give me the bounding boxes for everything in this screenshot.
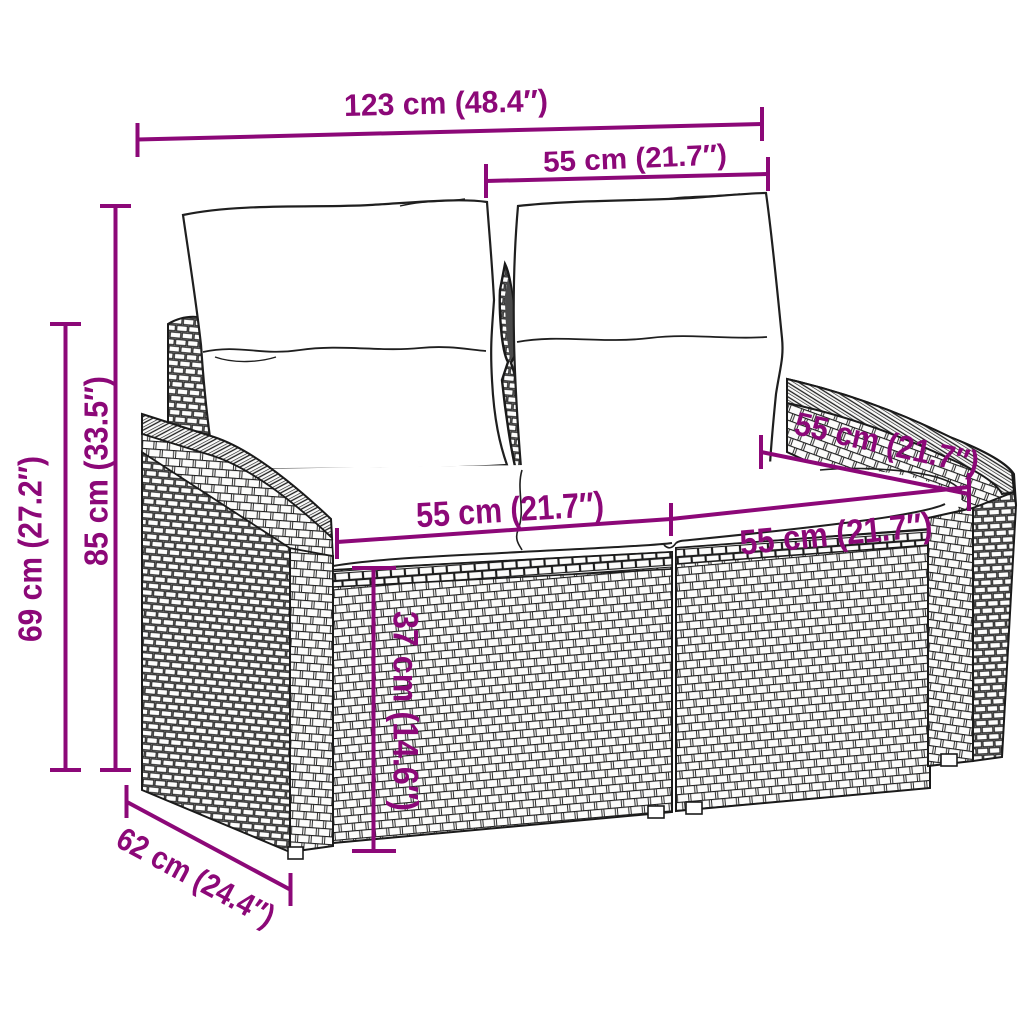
svg-text:69 cm (27.2″): 69 cm (27.2″): [12, 456, 49, 642]
svg-text:123 cm (48.4″): 123 cm (48.4″): [344, 83, 549, 123]
svg-text:85 cm (33.5″): 85 cm (33.5″): [78, 376, 115, 566]
svg-text:37 cm (14.6″): 37 cm (14.6″): [386, 611, 425, 811]
